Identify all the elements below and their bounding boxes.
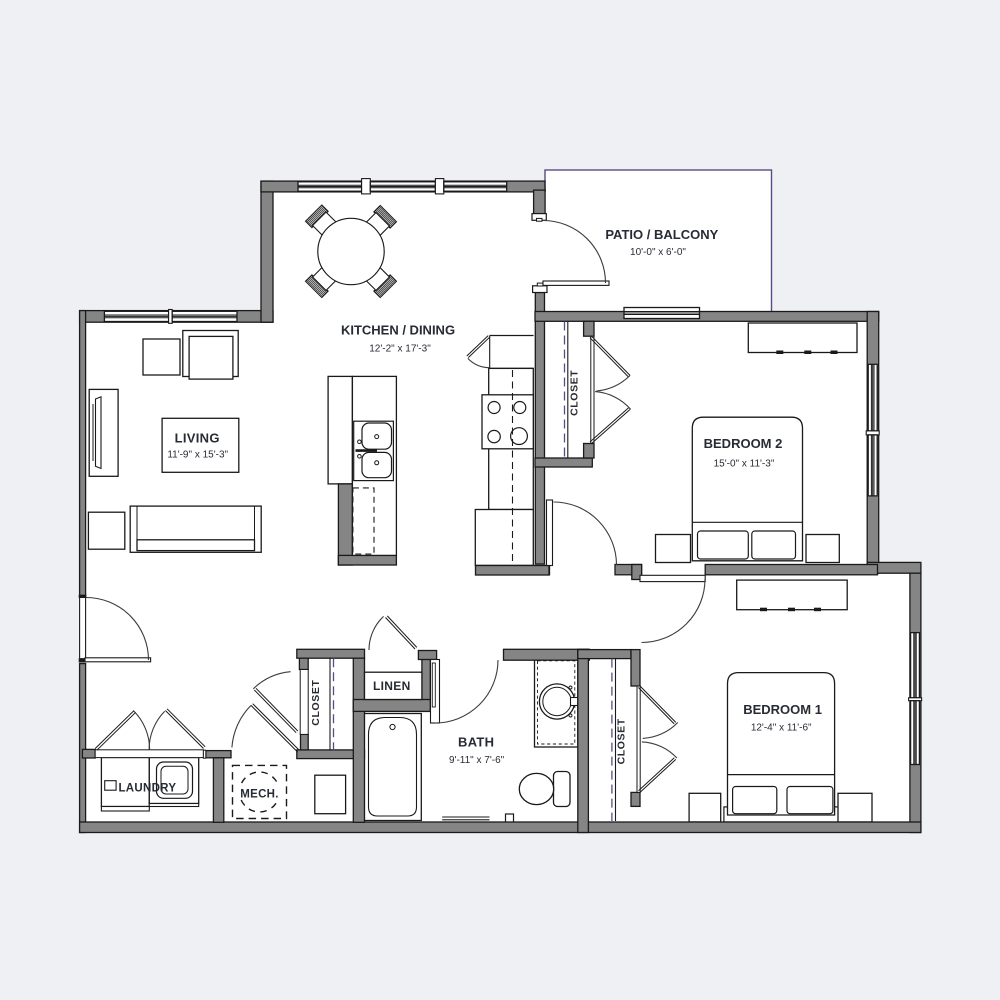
svg-text:12'-2" x 17'-3": 12'-2" x 17'-3" xyxy=(369,344,431,355)
svg-text:KITCHEN / DINING: KITCHEN / DINING xyxy=(341,323,455,338)
svg-text:15'-0" x 11'-3": 15'-0" x 11'-3" xyxy=(714,459,775,470)
svg-text:CLOSET: CLOSET xyxy=(569,370,581,416)
svg-text:CLOSET: CLOSET xyxy=(616,718,628,764)
svg-text:LIVING: LIVING xyxy=(175,431,220,446)
svg-text:BEDROOM 2: BEDROOM 2 xyxy=(704,436,783,451)
svg-text:10'-0" x 6'-0": 10'-0" x 6'-0" xyxy=(630,247,686,258)
svg-text:11'-9" x 15'-3": 11'-9" x 15'-3" xyxy=(167,450,228,461)
svg-text:BATH: BATH xyxy=(458,734,494,749)
svg-text:MECH.: MECH. xyxy=(240,789,279,801)
svg-text:LINEN: LINEN xyxy=(373,679,411,693)
svg-text:CLOSET: CLOSET xyxy=(310,680,322,726)
svg-text:PATIO / BALCONY: PATIO / BALCONY xyxy=(605,227,718,242)
svg-text:BEDROOM 1: BEDROOM 1 xyxy=(743,702,822,717)
svg-text:12'-4" x 11'-6": 12'-4" x 11'-6" xyxy=(751,723,812,734)
svg-text:LAUNDRY: LAUNDRY xyxy=(118,783,176,795)
svg-text:9'-11" x 7'-6": 9'-11" x 7'-6" xyxy=(449,755,505,766)
